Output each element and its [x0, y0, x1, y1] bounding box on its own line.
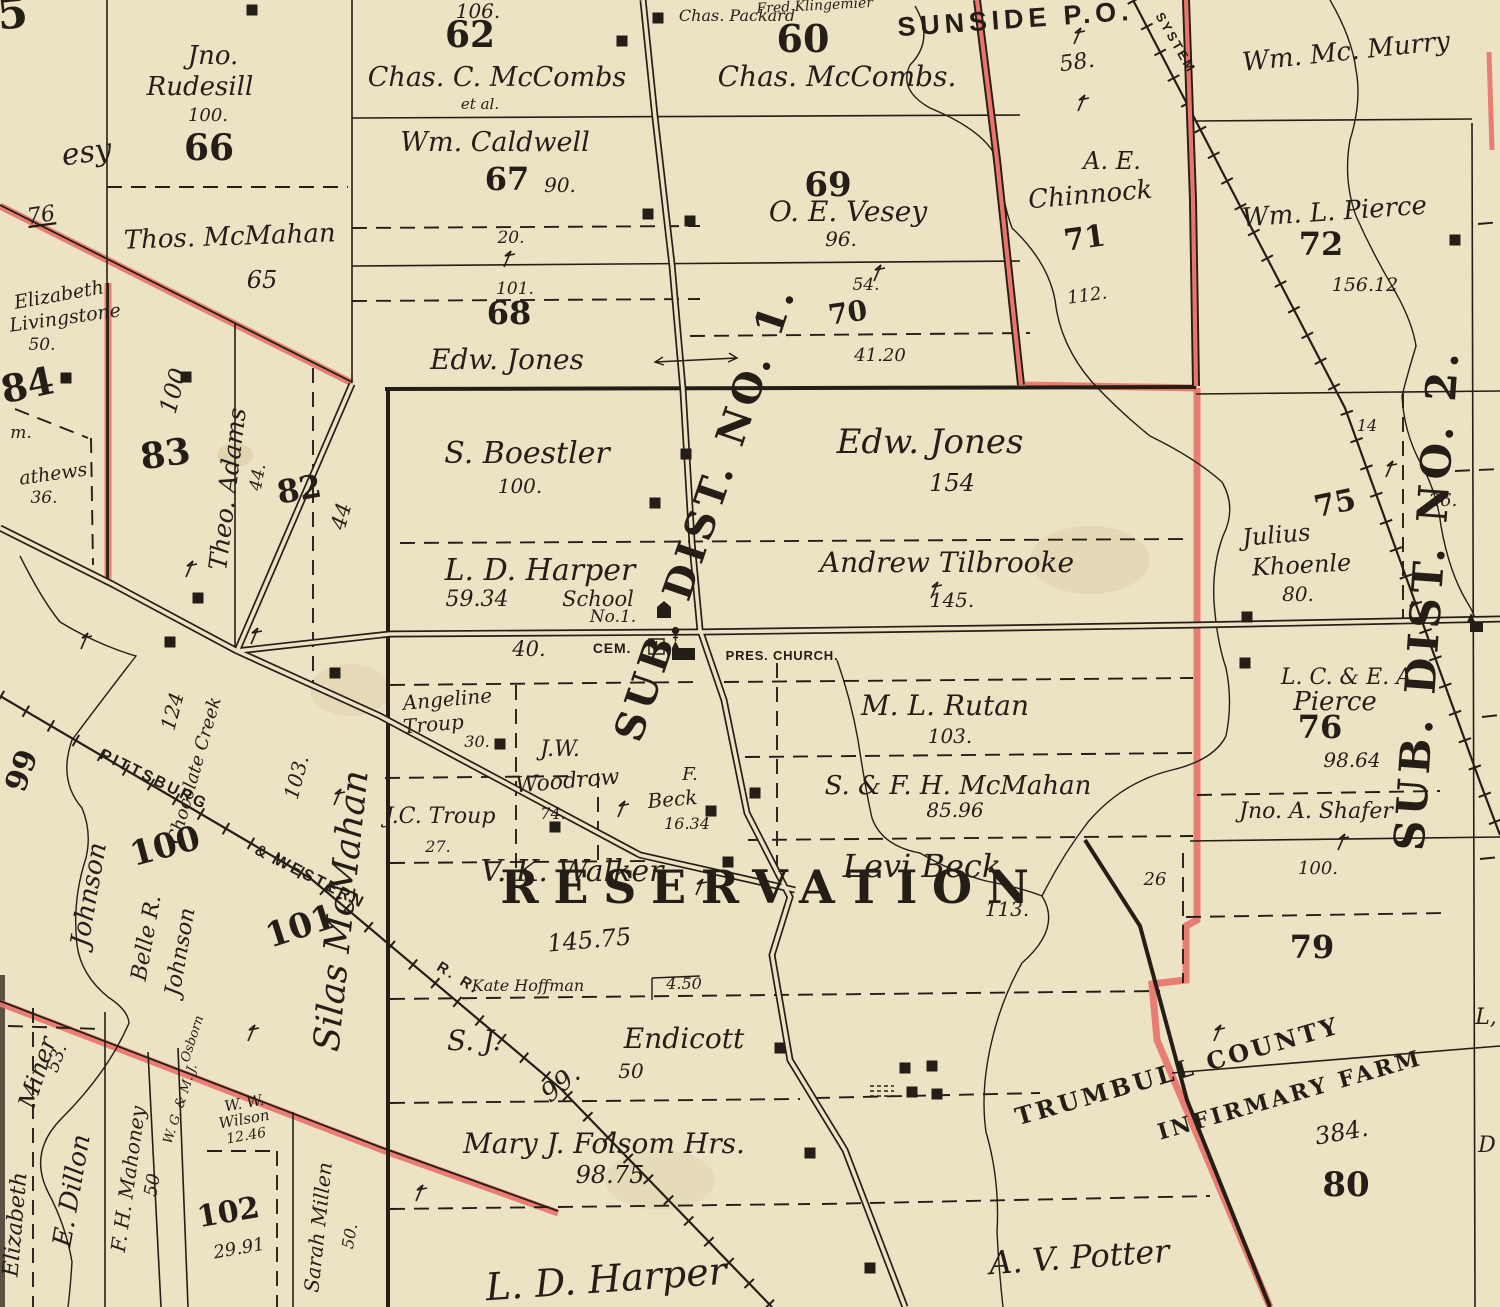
- building-marker: [907, 1087, 918, 1098]
- label-82: 82: [274, 467, 324, 512]
- label-edw-jones: Edw. Jones: [429, 343, 584, 376]
- label-74: 74.: [540, 804, 565, 823]
- label-58: 58.: [1058, 48, 1096, 78]
- building-marker: [650, 498, 661, 509]
- label-41-20: 41.20: [853, 345, 906, 366]
- building-marker: [900, 1063, 911, 1074]
- label-kate-hoffman: Kate Hoffman: [471, 976, 584, 995]
- label-s-boestler: S. Boestler: [444, 436, 611, 471]
- label-76: 76: [1298, 708, 1343, 746]
- label-68: 68: [487, 294, 532, 332]
- label-27: 27.: [424, 837, 450, 856]
- label-156-12: 156.12: [1332, 274, 1398, 296]
- label-d: D: [1477, 1133, 1496, 1158]
- label-et-al: et al.: [461, 95, 499, 113]
- label-66: 66: [184, 127, 234, 169]
- label-chas-c-mccombs: Chas. C. McCombs: [368, 62, 626, 93]
- label-59-34: 59.34: [446, 587, 509, 612]
- label-80: 80.: [1282, 582, 1314, 606]
- label-endicott: Endicott: [623, 1022, 745, 1055]
- building-marker: [1240, 658, 1251, 669]
- building-marker: [61, 373, 72, 384]
- label-rudesill: Rudesill: [146, 72, 254, 102]
- building-marker: [550, 822, 561, 833]
- label-a-e: A. E.: [1081, 147, 1141, 175]
- label-71: 71: [1062, 218, 1108, 258]
- label-16-34: 16.34: [664, 814, 710, 833]
- building-marker: [865, 1263, 876, 1274]
- label-m: m.: [10, 423, 32, 443]
- label-98-75: 98.75: [576, 1161, 645, 1189]
- label-20: 20.: [496, 228, 524, 248]
- label-70: 70: [826, 294, 869, 332]
- label-reservation: RESERVATION: [500, 860, 1043, 914]
- label-o-e-vesey: O. E. Vesey: [769, 195, 929, 228]
- label-98-64: 98.64: [1323, 748, 1380, 772]
- label-beck: Beck: [646, 785, 699, 813]
- building-marker: [653, 13, 664, 24]
- label-cem: CEM.: [593, 640, 631, 656]
- label-j-w: J.W.: [536, 737, 580, 762]
- building-marker: [193, 593, 204, 604]
- label-85-96: 85.96: [926, 798, 984, 822]
- label-62: 62: [445, 14, 495, 56]
- label-154: 154: [929, 469, 975, 497]
- label-36: 36.: [30, 488, 57, 508]
- label-khoenle: Khoenle: [1250, 548, 1352, 581]
- label-l: L,: [1474, 1005, 1497, 1030]
- label-andrew-tilbrooke: Andrew Tilbrooke: [817, 546, 1074, 579]
- label-96: 96.: [825, 227, 857, 251]
- label-145: 145.: [930, 588, 975, 612]
- label-s-j: S. J.: [447, 1024, 501, 1057]
- plat-map-canvas: 5esy76Jno.Rudesill100.66Thos. McMahan65E…: [0, 0, 1500, 1307]
- plat-map: 5esy76Jno.Rudesill100.66Thos. McMahan65E…: [0, 0, 1500, 1307]
- label-90: 90.: [544, 173, 576, 197]
- building-marker: [927, 1061, 938, 1072]
- label-chas-mccombs: Chas. McCombs.: [718, 60, 957, 93]
- label-pres-church: PRES. CHURCH.: [726, 648, 839, 663]
- building-marker: [165, 637, 176, 648]
- building-marker: [330, 668, 341, 679]
- building-marker: [775, 1043, 786, 1054]
- label-30: 30.: [464, 732, 489, 751]
- label-s-f-h-mcmahan: S. & F. H. McMahan: [825, 771, 1092, 801]
- label-60: 60: [777, 16, 830, 61]
- building-marker: [932, 1089, 943, 1100]
- district-boundary-thick: [385, 387, 1196, 389]
- label-50: 50: [618, 1059, 644, 1083]
- building-marker: [643, 209, 654, 220]
- label-79: 79: [1290, 928, 1335, 966]
- label-j-c-troup: J.C. Troup: [381, 804, 496, 829]
- label-72: 72: [1299, 225, 1344, 263]
- building-marker: [247, 5, 258, 16]
- label-100: 100.: [1298, 858, 1338, 879]
- label-edw-jones: Edw. Jones: [836, 422, 1024, 462]
- label-100: 100.: [188, 105, 228, 126]
- building-marker: [805, 1148, 816, 1159]
- label-m-l-rutan: M. L. Rutan: [860, 689, 1029, 722]
- label-67: 67: [485, 160, 530, 198]
- label-83: 83: [138, 430, 193, 479]
- building-marker: [1450, 235, 1461, 246]
- label-26: 26: [1143, 869, 1167, 890]
- label-mary-j-folsom-hrs: Mary J. Folsom Hrs.: [462, 1127, 745, 1160]
- label-wm-caldwell: Wm. Caldwell: [400, 127, 590, 158]
- label-4-50: 4.50: [665, 974, 702, 993]
- label-esy: esy: [59, 132, 115, 174]
- label-40: 40.: [511, 637, 545, 661]
- building-marker: [685, 216, 696, 227]
- building-marker: [617, 36, 628, 47]
- building-marker: [750, 788, 761, 799]
- label-50: 50: [140, 1172, 165, 1198]
- label-100: 100.: [498, 474, 543, 498]
- label-76: 76: [25, 201, 56, 230]
- label-80: 80: [1322, 1165, 1369, 1205]
- label-5: 5: [0, 0, 30, 41]
- label-54: 54.: [852, 275, 879, 295]
- building-marker: [1242, 612, 1253, 623]
- building-marker: [495, 739, 506, 750]
- label-65: 65: [247, 266, 278, 294]
- label-f: F.: [681, 764, 697, 785]
- label-no-1: No.1.: [589, 607, 636, 627]
- label-50: 50.: [28, 335, 55, 355]
- label-14: 14: [1357, 416, 1377, 435]
- building-marker: [681, 449, 692, 460]
- label-103: 103.: [928, 724, 973, 748]
- label-l-d-harper: L. D. Harper: [444, 553, 637, 588]
- label-jno-a-shafer: Jno. A. Shafer: [1235, 799, 1394, 824]
- red-boundary: [1489, 52, 1492, 150]
- label-jno: Jno.: [183, 41, 239, 71]
